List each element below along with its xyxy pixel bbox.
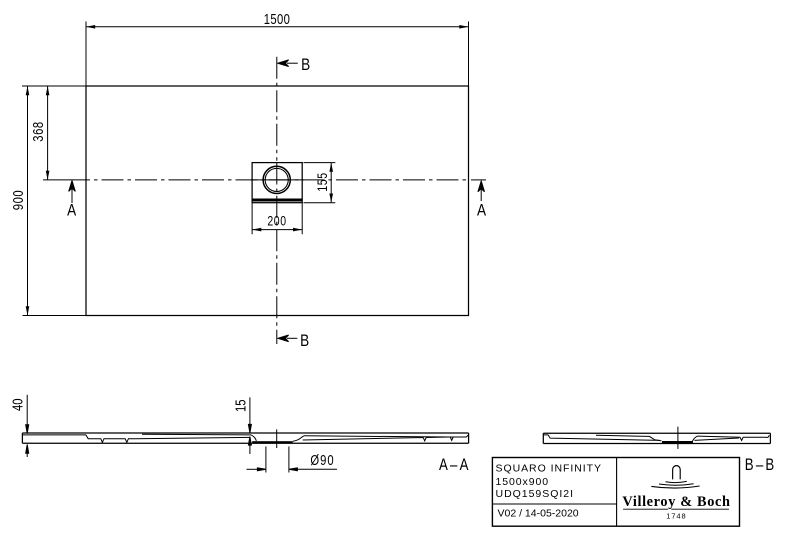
svg-text:A–A: A–A xyxy=(439,455,471,474)
svg-text:1500x900: 1500x900 xyxy=(496,476,550,488)
svg-text:368: 368 xyxy=(30,121,47,142)
svg-text:15: 15 xyxy=(232,400,249,413)
svg-text:SQUARO INFINITY: SQUARO INFINITY xyxy=(496,463,602,475)
svg-text:UDQ159SQI2I: UDQ159SQI2I xyxy=(496,488,574,500)
svg-text:B–B: B–B xyxy=(745,455,777,474)
svg-text:A: A xyxy=(67,201,77,220)
svg-text:Ø90: Ø90 xyxy=(310,452,334,469)
svg-text:200: 200 xyxy=(267,213,286,229)
svg-text:B: B xyxy=(300,331,309,350)
svg-text:1500: 1500 xyxy=(264,10,291,27)
svg-text:B: B xyxy=(301,56,310,75)
svg-text:155: 155 xyxy=(315,172,331,191)
svg-text:Villeroy & Boch: Villeroy & Boch xyxy=(622,494,730,510)
svg-text:900: 900 xyxy=(9,190,26,211)
svg-text:V02 / 14-05-2020: V02 / 14-05-2020 xyxy=(498,507,579,519)
svg-text:1748: 1748 xyxy=(666,512,686,521)
svg-text:40: 40 xyxy=(9,398,26,411)
svg-text:A: A xyxy=(477,201,487,220)
